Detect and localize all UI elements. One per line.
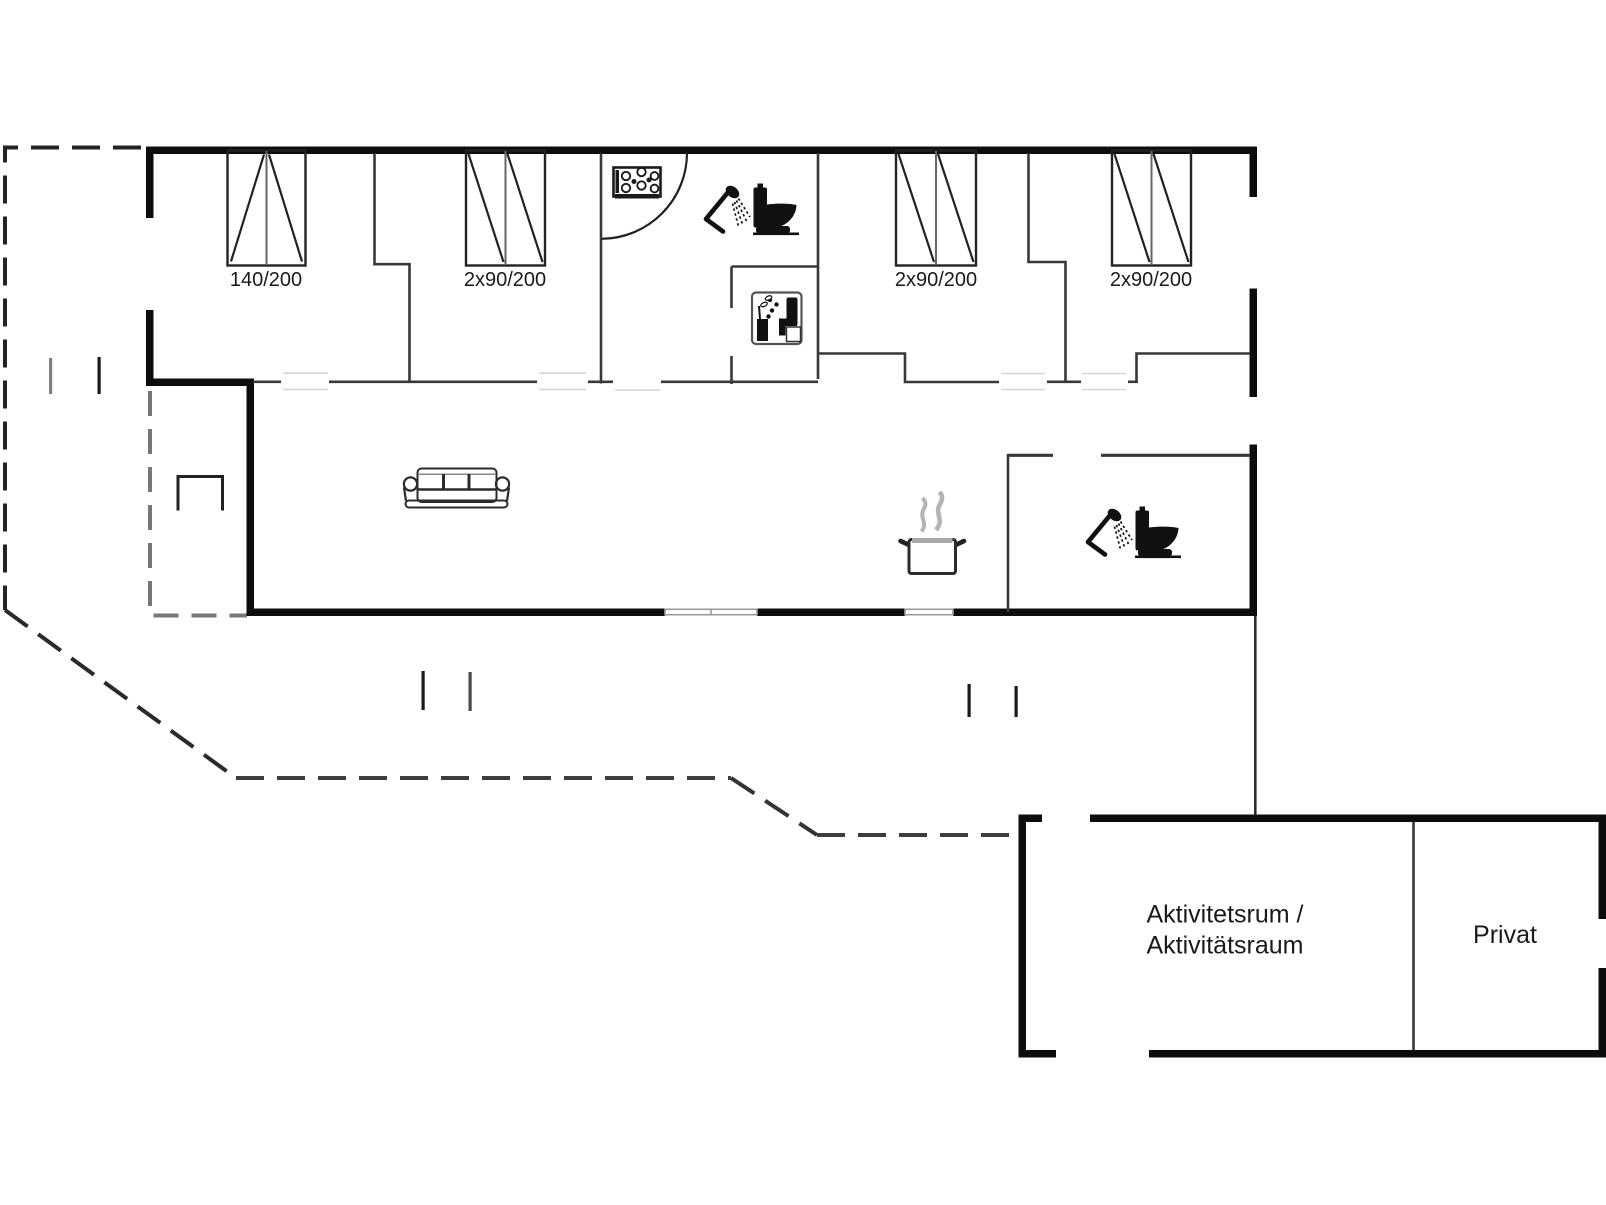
svg-text:Aktivitätsraum: Aktivitätsraum	[1147, 932, 1304, 960]
svg-text:2x90/200: 2x90/200	[464, 269, 546, 291]
svg-text:2x90/200: 2x90/200	[1110, 269, 1192, 291]
svg-text:Privat: Privat	[1473, 921, 1537, 949]
svg-text:Aktivitetsrum /: Aktivitetsrum /	[1147, 901, 1304, 929]
svg-text:140/200: 140/200	[230, 269, 302, 291]
svg-text:2x90/200: 2x90/200	[895, 269, 977, 291]
